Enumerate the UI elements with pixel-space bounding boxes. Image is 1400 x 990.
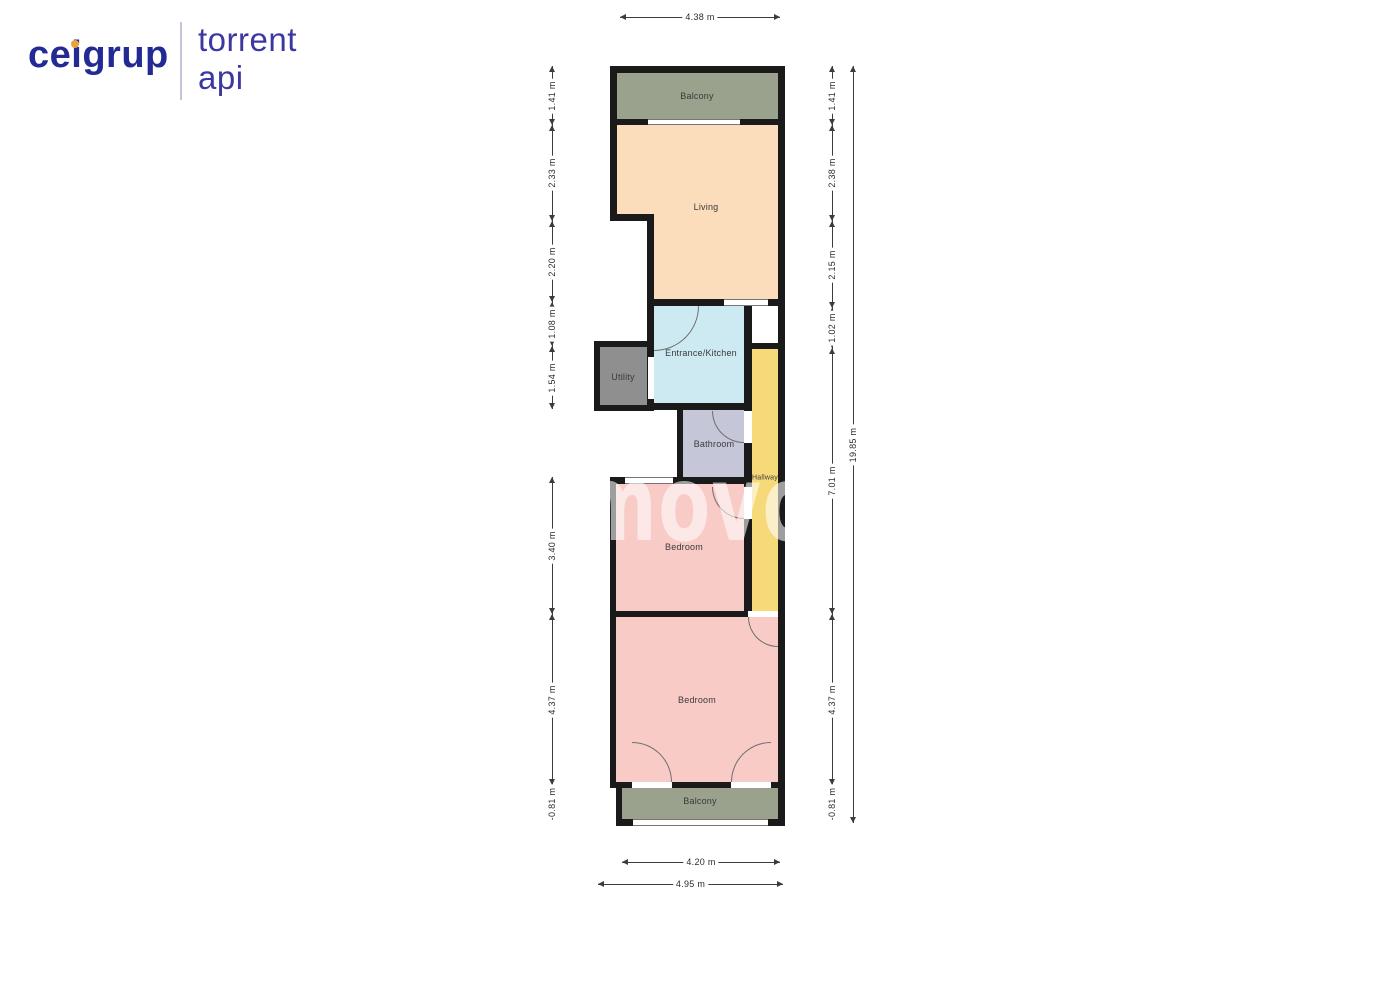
room-label-balcony-top: Balcony	[680, 91, 713, 101]
wall-hallway-top	[744, 343, 785, 349]
dim-bottom-outer: 4.95 m	[598, 879, 783, 889]
dim-left-3: 2.20 m	[547, 221, 557, 302]
wall-top	[610, 66, 785, 73]
door-gap-balcony-right	[731, 782, 771, 788]
dim-right-7: -0.81 m	[827, 785, 837, 823]
brand-name-line1: torrent	[198, 21, 297, 59]
dim-right-5: 7.01 m	[827, 348, 837, 614]
logo: ceigrup torrent api	[28, 18, 348, 104]
dim-left-2: 2.33 m	[547, 125, 557, 221]
dim-left-7: 4.37 m	[547, 614, 557, 785]
dim-right-total: 19.85 m	[848, 66, 858, 823]
room-label-balcony-bottom: Balcony	[683, 796, 716, 806]
dim-right-4: 1.02 m	[827, 308, 837, 348]
window-living-kitchen	[724, 299, 768, 306]
wall-utility-top	[594, 341, 654, 347]
wall-left-upper	[610, 66, 617, 221]
brand-post: grup	[82, 34, 168, 76]
dim-left-4: 1.08 m	[547, 302, 557, 346]
window-balcony-railing	[633, 819, 768, 826]
dim-left-6: 3.40 m	[547, 477, 557, 614]
door-gap-balcony-left	[632, 782, 672, 788]
brand-torrent-api: torrent api	[198, 21, 297, 97]
room-label-utility: Utility	[611, 372, 634, 382]
brand-ceigrup: ceigrup	[28, 32, 169, 78]
dim-top: 4.38 m	[620, 12, 780, 22]
door-gap-utility	[648, 357, 654, 399]
wall-utility-left	[594, 341, 600, 411]
room-label-entrance-kitchen: Entrance/Kitchen	[665, 348, 737, 358]
room-label-bedroom-2: Bedroom	[678, 695, 716, 705]
door-gap-bathroom	[744, 411, 752, 443]
watermark: movo	[578, 452, 816, 557]
dim-bottom-inner: 4.20 m	[622, 857, 780, 867]
dim-left-1: 1.41 m	[547, 66, 557, 125]
wall-utility-bottom	[594, 405, 654, 411]
brand-pre: ce	[28, 34, 71, 76]
logo-divider	[180, 22, 182, 100]
room-living-lower	[654, 221, 778, 299]
window-balcony-living	[648, 119, 740, 125]
brand-i-dot	[71, 40, 79, 48]
brand-name-line2: api	[198, 59, 297, 97]
dim-left-5: 1.54 m	[547, 346, 557, 409]
dim-right-3: 2.15 m	[827, 221, 837, 308]
room-label-living: Living	[694, 202, 719, 212]
dim-left-8: -0.81 m	[547, 785, 557, 823]
wall-kitchen-bottom	[647, 403, 752, 410]
dim-right-6: 4.37 m	[827, 614, 837, 785]
dim-right-2: 2.38 m	[827, 125, 837, 221]
dim-right-1: 1.41 m	[827, 66, 837, 125]
floorplan-page: ceigrup torrent api	[0, 0, 1400, 990]
